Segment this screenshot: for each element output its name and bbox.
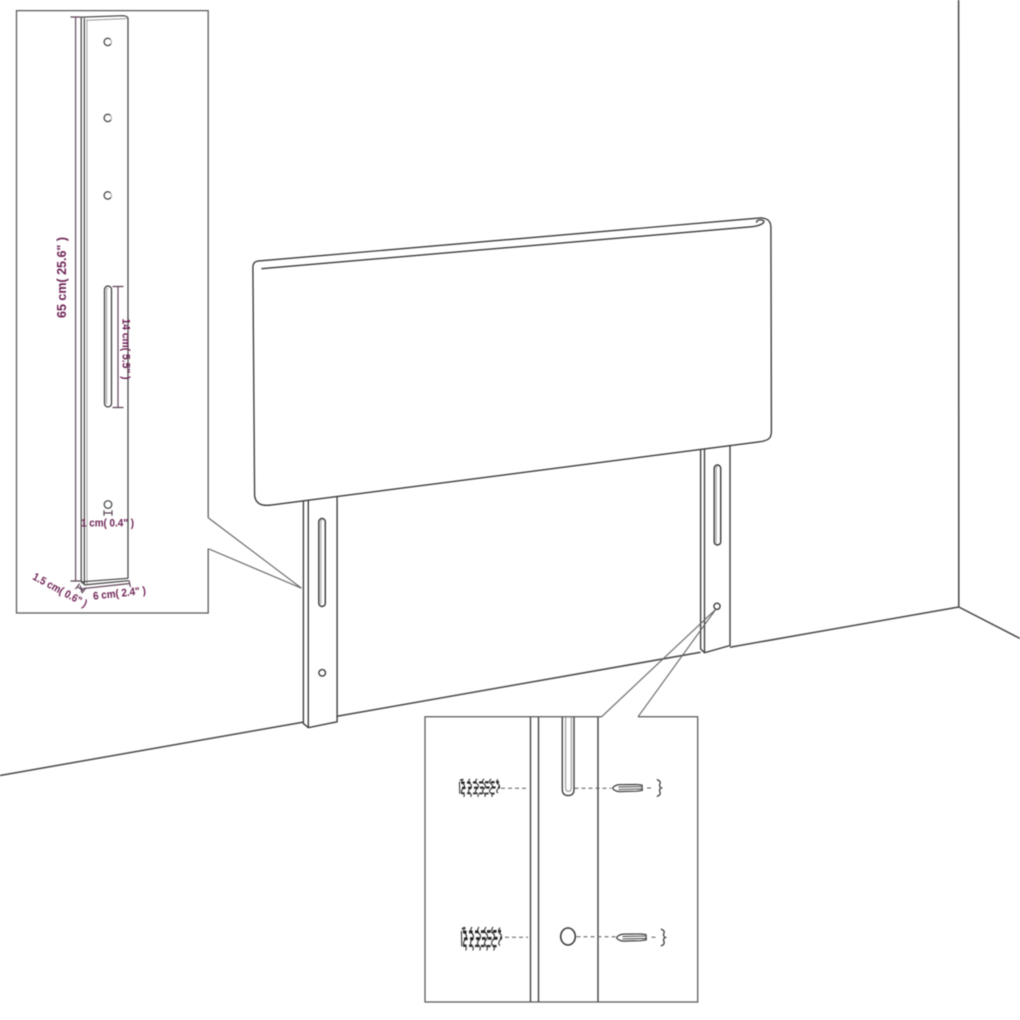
svg-text:1 cm( 0.4" ): 1 cm( 0.4" ) (81, 517, 134, 529)
svg-text:14 cm( 5.5" ): 14 cm( 5.5" ) (119, 319, 131, 380)
svg-text:65 cm( 25.6" ): 65 cm( 25.6" ) (55, 237, 69, 318)
